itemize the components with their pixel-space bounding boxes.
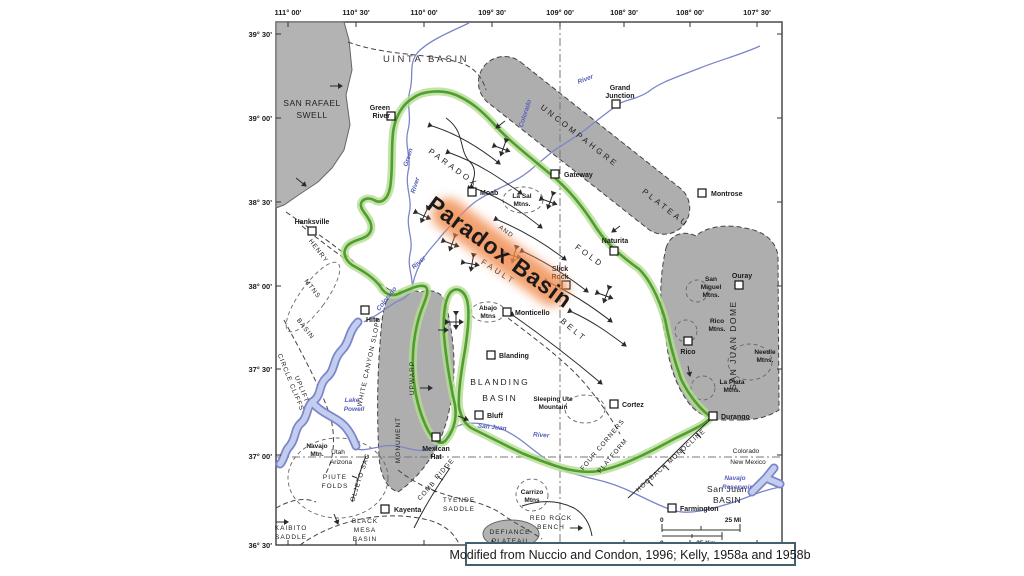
lat-label: 36° 30' [248, 541, 272, 550]
lon-label: 108° 00' [676, 8, 704, 17]
town-blanding: Blanding [499, 353, 529, 360]
rico-mtns-2: Mtns. [709, 326, 726, 333]
lon-label: 111° 00' [275, 8, 302, 17]
town-grand-junction-2: Junction [605, 93, 634, 100]
town-montrose: Montrose [711, 191, 743, 198]
lat-label: 38° 00' [248, 282, 272, 291]
town-rico: Rico [680, 349, 695, 356]
lon-label: 110° 00' [410, 8, 438, 17]
blanding-basin-label-2: BASIN [482, 393, 518, 403]
town-green-river-2: River [372, 113, 390, 120]
town-cortez: Cortez [622, 402, 644, 409]
la-plata-mtns-1: La Plata [720, 379, 745, 386]
lon-label: 107° 30' [743, 8, 771, 17]
black-mesa-label-1: BLACK [352, 518, 378, 525]
lon-labels: 111° 00' 110° 30' 110° 00' 109° 30' 109°… [275, 8, 772, 17]
san-miguel-mtns-2: Miguel [701, 284, 722, 291]
caption-box: Modified from Nuccio and Condon, 1996; K… [449, 543, 810, 565]
needle-mtns-2: Mtns. [757, 357, 774, 364]
lat-labels: 39° 30' 39° 00' 38° 30' 38° 00' 37° 30' … [248, 30, 272, 550]
lat-label: 39° 00' [248, 114, 272, 123]
lon-label: 109° 00' [546, 8, 574, 17]
uinta-basin-label: UINTA BASIN [383, 54, 469, 65]
new-mexico-label: New Mexico [730, 459, 766, 466]
la-sal-mtns-1: La Sal [512, 193, 531, 200]
sleeping-ute-2: Mountain [539, 404, 568, 411]
carrizo-mtns-2: Mtns [524, 497, 540, 504]
lat-label: 37° 00' [248, 452, 272, 461]
rico-mtns-1: Rico [710, 318, 724, 325]
lat-label: 37° 30' [248, 365, 272, 374]
piute-label-2: FOLDS [322, 483, 349, 490]
paradox-basin-map: 111° 00' 110° 30' 110° 00' 109° 30' 109°… [0, 0, 1024, 576]
san-juan-dome-label: SAN JUAN DOME [728, 300, 738, 389]
navajo-reservoir-label-1: Navajo [724, 475, 745, 482]
black-mesa-label-2: MESA [354, 527, 376, 534]
slide: 111° 00' 110° 30' 110° 00' 109° 30' 109°… [0, 0, 1024, 576]
san-juan-basin-label-2: BASIN [713, 495, 741, 505]
la-sal-mtns-2: Mtns. [514, 201, 531, 208]
town-hanksville: Hanksville [295, 219, 330, 226]
town-hite: Hite [366, 317, 379, 324]
blanding-basin-label-1: BLANDING [470, 377, 529, 387]
navajo-mtn-2: Mtn. [310, 451, 324, 458]
town-bluff: Bluff [487, 413, 504, 420]
kaibito-label-2: SADDLE [275, 534, 307, 541]
abajo-mtns-1: Abajo [479, 305, 497, 312]
defiance-label-1: DEFIANCE [490, 529, 531, 536]
town-mexican-hat-1: Mexican [422, 446, 450, 453]
kaibito-label-1: KAIBITO [275, 525, 308, 532]
caption-text: Modified from Nuccio and Condon, 1996; K… [449, 548, 810, 562]
arizona-label: Arizona [330, 459, 352, 466]
navajo-mtn-1: Navajo [306, 443, 327, 450]
upwarp-label: UPWARP [409, 361, 416, 395]
san-miguel-mtns-3: Mtns. [703, 292, 720, 299]
red-rock-label-1: RED ROCK [530, 515, 572, 522]
piute-label-1: PIUTE [323, 474, 347, 481]
black-mesa-label-3: BASIN [353, 536, 378, 543]
needle-mtns-1: Needle [754, 349, 776, 356]
carrizo-mtns-1: Carrizo [521, 489, 543, 496]
town-farmington: Farmington [680, 506, 719, 513]
lon-label: 109° 30' [478, 8, 506, 17]
colorado-label: Colorado [733, 448, 760, 455]
town-green-river-1: Green [370, 105, 390, 112]
lon-label: 108° 30' [610, 8, 638, 17]
la-plata-mtns-2: Mtns. [724, 387, 741, 394]
red-rock-label-2: BENCH [537, 524, 565, 531]
abajo-mtns-2: Mtns [480, 313, 496, 320]
tyende-label-2: SADDLE [443, 506, 475, 513]
town-ouray: Ouray [732, 273, 752, 280]
san-rafael-label-1: SAN RAFAEL [283, 98, 340, 108]
monument-label: MONUMENT [395, 417, 402, 463]
lon-label: 110° 30' [342, 8, 370, 17]
san-rafael-label-2: SWELL [296, 110, 327, 120]
town-gateway: Gateway [564, 172, 593, 179]
navajo-reservoir-label-2: Reservoir [722, 484, 752, 491]
sleeping-ute-1: Sleeping Ute [533, 396, 573, 403]
utah-label: Utah [331, 449, 345, 456]
lake-powell-label-2: Powell [344, 406, 365, 413]
scale-zero-mi: 0 [660, 517, 664, 524]
san-juan-river-label-2: River [533, 431, 550, 439]
san-miguel-mtns-1: San [705, 276, 717, 283]
town-moab: Moab [480, 190, 498, 197]
scale-25-mi: 25 MI [725, 517, 741, 524]
lake-powell-label-1: Lake [345, 397, 360, 404]
town-durango: Durango [721, 414, 750, 421]
town-kayenta: Kayenta [394, 507, 421, 514]
lat-label: 39° 30' [248, 30, 272, 39]
town-grand-junction-1: Grand [610, 85, 631, 92]
town-mexican-hat-2: Hat [430, 454, 442, 461]
town-monticello: Monticello [515, 310, 550, 317]
town-naturita: Naturita [602, 238, 629, 245]
lat-label: 38° 30' [248, 198, 272, 207]
tyende-label-1: TYENDE [443, 497, 475, 504]
